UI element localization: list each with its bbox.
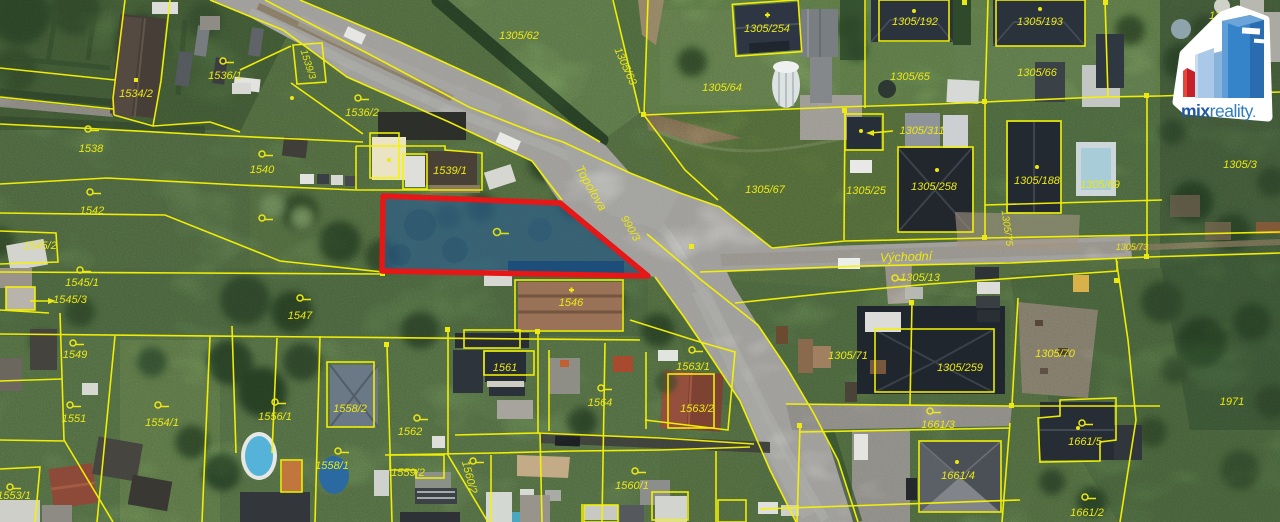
svg-text:1553/1: 1553/1: [0, 490, 31, 502]
svg-text:1305/25: 1305/25: [846, 185, 887, 197]
svg-text:1558/1: 1558/1: [315, 460, 349, 472]
svg-text:1661/2: 1661/2: [1070, 507, 1104, 519]
svg-text:1536/2: 1536/2: [345, 107, 379, 119]
svg-text:1305/64: 1305/64: [702, 82, 742, 94]
svg-text:1545/1: 1545/1: [65, 277, 99, 289]
svg-text:1305/188: 1305/188: [1014, 175, 1061, 187]
svg-text:1971: 1971: [1220, 396, 1244, 408]
svg-text:1305/193: 1305/193: [1017, 16, 1064, 28]
svg-text:1563/1: 1563/1: [676, 361, 710, 373]
svg-text:1305/71: 1305/71: [828, 350, 868, 362]
svg-text:1305/258: 1305/258: [911, 181, 958, 193]
svg-text:1534/2: 1534/2: [119, 88, 153, 100]
svg-text:1305/259: 1305/259: [937, 362, 983, 374]
svg-text:1547: 1547: [288, 310, 313, 322]
svg-text:mixreality.: mixreality.: [1181, 101, 1256, 121]
svg-text:1549: 1549: [63, 349, 87, 361]
svg-text:1661/3: 1661/3: [921, 419, 956, 431]
svg-text:1538: 1538: [79, 143, 104, 155]
svg-text:1556/1: 1556/1: [258, 411, 292, 423]
svg-text:1546: 1546: [559, 297, 584, 309]
svg-text:1563/2: 1563/2: [680, 403, 714, 415]
svg-text:1540: 1540: [250, 164, 275, 176]
svg-text:1562: 1562: [398, 426, 422, 438]
svg-text:1305/311: 1305/311: [899, 125, 944, 137]
svg-text:1551: 1551: [62, 413, 86, 425]
svg-text:1542: 1542: [80, 205, 104, 217]
svg-text:1545/2: 1545/2: [23, 240, 57, 252]
svg-text:1564: 1564: [588, 397, 612, 409]
svg-text:1539/1: 1539/1: [433, 165, 467, 177]
svg-text:1305/65: 1305/65: [890, 71, 931, 83]
svg-text:Východní: Východní: [880, 249, 934, 265]
svg-text:1560/1: 1560/1: [615, 480, 649, 492]
svg-text:1545/3: 1545/3: [53, 294, 88, 306]
svg-text:1554/1: 1554/1: [145, 417, 179, 429]
svg-text:1559/2: 1559/2: [391, 467, 425, 479]
svg-text:1561: 1561: [493, 362, 517, 374]
svg-text:1661/4: 1661/4: [941, 470, 975, 482]
svg-text:1305/70: 1305/70: [1035, 348, 1076, 360]
svg-text:1305/254: 1305/254: [744, 23, 790, 35]
svg-text:1305/66: 1305/66: [1017, 67, 1058, 79]
svg-text:1305/62: 1305/62: [499, 30, 539, 42]
svg-text:1305/69: 1305/69: [1080, 179, 1120, 191]
svg-text:1305/3: 1305/3: [1223, 159, 1258, 171]
svg-text:1536/1: 1536/1: [208, 70, 242, 82]
svg-text:1558/2: 1558/2: [333, 403, 367, 415]
svg-text:1661/5: 1661/5: [1068, 436, 1103, 448]
svg-text:1305/73: 1305/73: [1116, 242, 1149, 252]
svg-text:1305/13: 1305/13: [900, 272, 941, 284]
svg-text:1305/67: 1305/67: [745, 184, 786, 196]
svg-text:1305/192: 1305/192: [892, 16, 938, 28]
